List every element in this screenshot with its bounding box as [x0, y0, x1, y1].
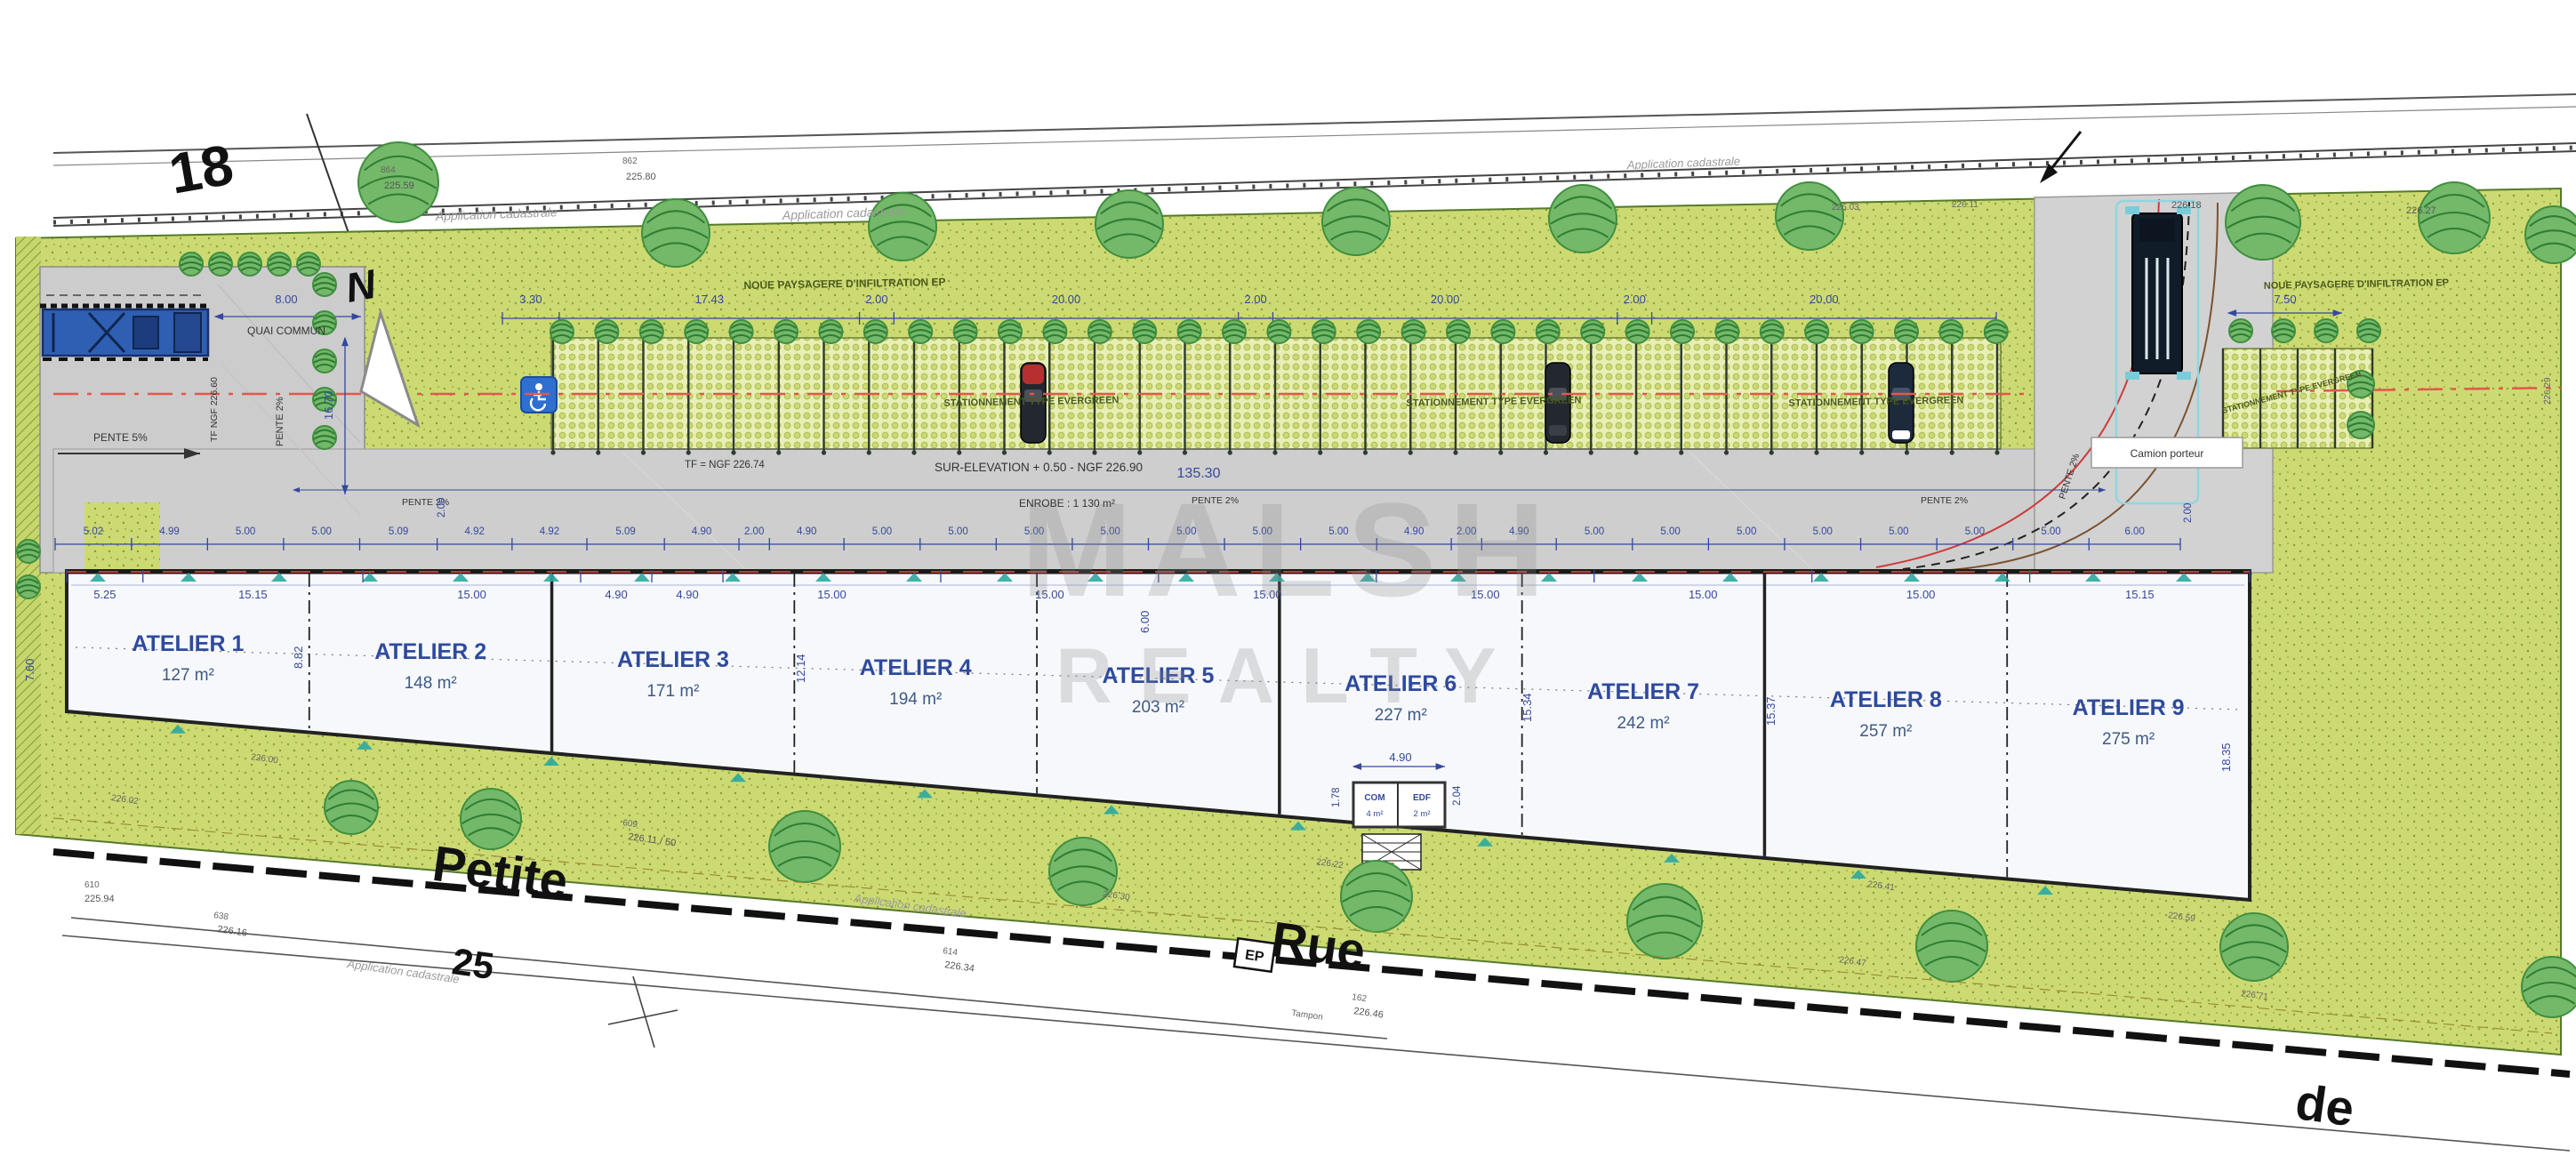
- tree-icon: [642, 199, 710, 267]
- dim-label: 15.00: [1906, 588, 1936, 601]
- dim-label: 5.25: [93, 588, 116, 601]
- survey-point-level: 225.59: [384, 181, 414, 191]
- dim-label: 4.99: [159, 526, 179, 537]
- tree-icon: [819, 320, 842, 343]
- tree-icon: [238, 253, 261, 276]
- tree-icon: [2522, 957, 2576, 1017]
- tree-icon: [297, 253, 320, 276]
- tree-icon: [1805, 320, 1828, 343]
- tree-icon: [1715, 320, 1738, 343]
- tree-icon: [1776, 182, 1843, 250]
- survey-level: 226.03: [1832, 203, 1859, 213]
- unit-name-label: ATELIER 3: [617, 647, 729, 672]
- dim-label: 4.90: [692, 526, 711, 537]
- dim-label: 17.43: [694, 293, 724, 306]
- tree-icon: [17, 575, 40, 598]
- tree-icon: [268, 253, 291, 276]
- survey-point-level: 226.34: [944, 959, 975, 975]
- tree-icon: [1267, 320, 1290, 343]
- dim-label: 15.00: [1689, 588, 1718, 601]
- unit-depth-dim: 15.37: [1764, 696, 1778, 726]
- dim-label: 5.00: [1585, 526, 1604, 537]
- tree-icon: [1549, 185, 1617, 253]
- tree-icon: [1088, 320, 1111, 343]
- tree-icon: [2315, 319, 2338, 342]
- dim-label: 2.00: [744, 526, 764, 537]
- tree-icon: [2272, 319, 2295, 342]
- tree-icon: [730, 320, 753, 343]
- unit-area-label: 257 m²: [1859, 722, 1912, 741]
- unit-depth-dim: 12.14: [794, 654, 807, 683]
- dim-label: 15.00: [457, 588, 486, 601]
- tree-icon: [769, 811, 840, 882]
- unit-depth-dim: 8.82: [292, 646, 305, 669]
- tree-icon: [550, 320, 574, 343]
- cadastre-note: Application cadastrale: [435, 205, 558, 223]
- tree-icon: [17, 540, 40, 563]
- tree-icon: [1312, 320, 1336, 343]
- dim-label: 15.15: [238, 588, 268, 601]
- tree-icon: [1223, 320, 1246, 343]
- dim-label: 2.00: [1624, 293, 1646, 306]
- dim-label: 5.02: [84, 526, 103, 537]
- green-patch: [84, 502, 160, 572]
- tree-icon: [2419, 182, 2490, 253]
- tree-icon: [1178, 320, 1201, 343]
- unit-area-label: 148 m²: [405, 674, 457, 693]
- unit-area-label: 127 m²: [162, 666, 214, 685]
- dim-label: 5.00: [1737, 526, 1756, 537]
- dim-label: 5.00: [1813, 526, 1833, 537]
- unit-name-label: ATELIER 1: [132, 631, 244, 656]
- dim-label: 2.00: [1244, 293, 1266, 306]
- tree-icon: [909, 320, 932, 343]
- tree-icon: [1491, 320, 1514, 343]
- dim-label: 4.90: [605, 588, 627, 601]
- dim-label: 5.00: [948, 526, 967, 537]
- dim-label: 20.00: [1810, 293, 1839, 306]
- street-word: de: [2292, 1073, 2357, 1136]
- tree-icon: [1581, 320, 1604, 343]
- tree-icon: [1537, 320, 1560, 343]
- tree-icon: [1626, 320, 1649, 343]
- tree-icon: [1939, 320, 1962, 343]
- unit-name-label: ATELIER 2: [374, 639, 486, 664]
- tree-icon: [999, 320, 1022, 343]
- dim-label: 4.92: [540, 526, 559, 537]
- street-word: Rue: [1268, 911, 1369, 979]
- tree-icon: [1447, 320, 1470, 343]
- tree-icon: [313, 349, 336, 373]
- tree-icon: [1850, 320, 1874, 343]
- tree-icon: [2220, 913, 2288, 981]
- com-area: 4 m²: [1367, 809, 1384, 819]
- dim-label: 2.00: [865, 293, 887, 306]
- pente2-label: PENTE 2%: [1192, 495, 1239, 506]
- dim-label: 6.00: [2124, 526, 2144, 537]
- dim-label: 5.00: [1660, 526, 1680, 537]
- dim-label: 3.30: [519, 293, 542, 306]
- dim-label: 5.00: [1965, 526, 1985, 537]
- tree-icon: [1895, 320, 1918, 343]
- local-width-dim: 4.90: [1389, 751, 1411, 764]
- total-length-dim: 135.30: [1177, 466, 1221, 481]
- survey-level: 226.11: [1952, 200, 1978, 210]
- tree-icon: [313, 426, 336, 449]
- survey-point-id: 864: [381, 165, 396, 175]
- tree-icon: [2226, 185, 2300, 260]
- unit-area-label: 171 m²: [646, 682, 699, 701]
- survey-point-level: 226.46: [1353, 1006, 1384, 1021]
- site-plan-canvas: Camion porteur ATELIER 1127 m²ATELIER 21…: [0, 0, 2576, 1156]
- tree-icon: [325, 781, 378, 834]
- survey-point-id: 610: [84, 880, 100, 890]
- truck-blue-icon: [43, 309, 208, 359]
- survey-point-level: 225.94: [84, 894, 115, 904]
- local-d2-dim: 2.04: [1452, 785, 1463, 806]
- tree-icon: [954, 320, 977, 343]
- survey-point-id: 862: [622, 157, 638, 166]
- tree-icon: [774, 320, 798, 343]
- tree-icon: [2525, 206, 2576, 263]
- camion-label: Camion porteur: [2131, 447, 2204, 460]
- talus-hatch: [16, 237, 41, 834]
- left-depth-dim: 7.60: [23, 659, 36, 681]
- tree-icon: [2347, 412, 2374, 438]
- dim-label: 4.90: [797, 526, 816, 537]
- tree-icon: [1916, 911, 1987, 982]
- tree-icon: [1322, 188, 1390, 255]
- tree-icon: [1133, 320, 1156, 343]
- survey-level: 226.27: [2406, 205, 2436, 216]
- survey-point-level: 225.80: [626, 172, 656, 182]
- unit-area-label: 275 m²: [2102, 730, 2155, 749]
- unit-name-label: ATELIER 8: [1830, 687, 1942, 712]
- tf-quai-label: TF NGF 226.60: [209, 377, 220, 442]
- watermark-line2: REALTY: [1055, 631, 1522, 719]
- surelevation-label: SUR-ELEVATION + 0.50 - NGF 226.90: [935, 461, 1143, 474]
- site-plan-page: Camion porteur ATELIER 1127 m²ATELIER 21…: [0, 0, 2576, 1156]
- unit-depth-dim: 18.35: [2219, 743, 2233, 772]
- truck-black-icon: [2125, 206, 2191, 380]
- cadastre-note: Application cadastrale: [346, 957, 461, 986]
- canopy-gap-dim: 2.00: [2183, 503, 2194, 523]
- tree-icon: [2229, 319, 2252, 342]
- parcel-18-label: 18: [165, 132, 238, 206]
- tampon-label: Tampon: [1291, 1008, 1324, 1023]
- tree-icon: [1627, 884, 1702, 959]
- pente2-label: PENTE 2%: [275, 397, 285, 446]
- tree-icon: [685, 320, 708, 343]
- unit-name-label: ATELIER 7: [1587, 679, 1699, 704]
- tree-icon: [1095, 190, 1163, 258]
- tree-icon: [1357, 320, 1380, 343]
- quai-label: QUAI COMMUN: [247, 325, 325, 337]
- dim-label: 4.92: [465, 526, 485, 537]
- survey-point-id: 162: [1352, 992, 1368, 1004]
- tree-icon: [180, 253, 203, 276]
- ep-label: EP: [1244, 948, 1265, 966]
- canopy-gap-dim: 2.00: [437, 498, 447, 518]
- tf-road-label: TF = NGF 226.74: [685, 460, 765, 470]
- dim-label: 5.00: [872, 526, 892, 537]
- pente2-label: PENTE 2%: [1921, 495, 1968, 506]
- tree-icon: [1402, 320, 1425, 343]
- dim-label: 5.00: [236, 526, 255, 537]
- watermark: MALSH REALTY: [1021, 475, 1557, 719]
- entrance-width-dim: 7.50: [2274, 293, 2296, 306]
- tree-icon: [1671, 320, 1694, 343]
- tree-icon: [595, 320, 618, 343]
- tree-icon: [209, 253, 232, 276]
- tree-icon: [1761, 320, 1784, 343]
- dim-label: 20.00: [1052, 293, 1081, 306]
- edf-area: 2 m²: [1414, 809, 1431, 819]
- tree-icon: [2357, 319, 2380, 342]
- com-label: COM: [1364, 793, 1384, 803]
- dim-label: 5.09: [389, 526, 408, 537]
- dim-label: 5.00: [1889, 526, 1908, 537]
- survey-level: 226.18: [2171, 200, 2202, 211]
- tree-icon: [1043, 320, 1066, 343]
- dim-label: 5.00: [312, 526, 332, 537]
- dim-label: 5.09: [615, 526, 635, 537]
- dim-label: 15.15: [2125, 588, 2155, 601]
- tree-icon: [313, 273, 336, 296]
- dim-label: 4.90: [676, 588, 698, 601]
- dim-label: 20.00: [1431, 293, 1460, 306]
- unit-area-label: 242 m²: [1617, 714, 1669, 733]
- tree-icon: [1985, 320, 2008, 343]
- edf-label: EDF: [1413, 793, 1431, 803]
- unit-area-label: 194 m²: [889, 690, 942, 709]
- quai-length-dim: 16.70: [322, 390, 335, 420]
- tree-icon: [864, 320, 887, 343]
- quai-width-dim: 8.00: [275, 293, 297, 306]
- enrobe-label: ENROBE : 1 130 m²: [1019, 497, 1115, 510]
- survey-point-id: 614: [943, 946, 959, 958]
- survey-point-id: 638: [213, 911, 229, 922]
- dim-label: 5.00: [2041, 526, 2060, 537]
- unit-name-label: ATELIER 9: [2073, 695, 2185, 720]
- unit-name-label: ATELIER 4: [860, 655, 972, 680]
- dim-label: 15.00: [817, 588, 847, 601]
- survey-point-level: 226.16: [217, 924, 248, 939]
- local-d1-dim: 1.78: [1331, 788, 1342, 807]
- survey-level: 226.29: [2543, 377, 2553, 405]
- tree-icon: [640, 320, 663, 343]
- pente5-label: PENTE 5%: [93, 431, 148, 444]
